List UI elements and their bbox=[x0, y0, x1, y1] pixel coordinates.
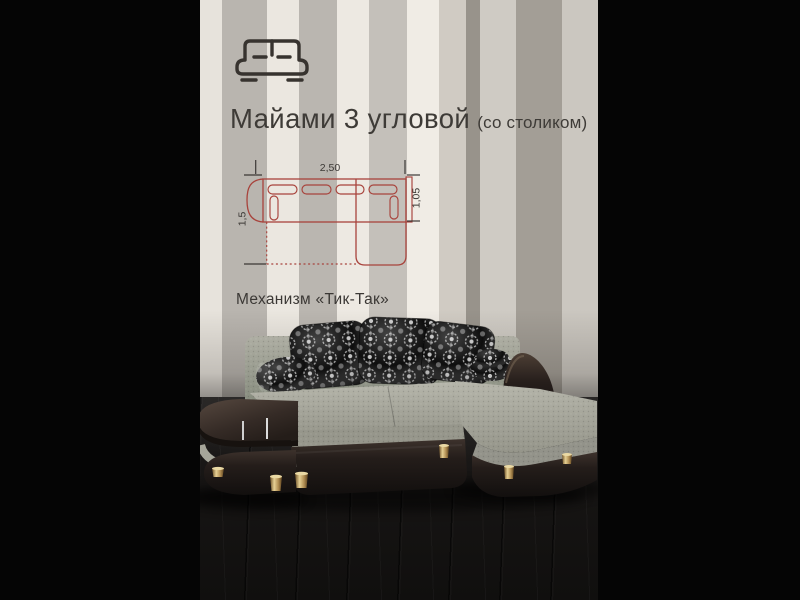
diagram-back-cushion-3 bbox=[336, 185, 364, 194]
photo-content: Майами 3 угловой (со столиком) bbox=[200, 0, 598, 600]
chaise-section bbox=[455, 381, 597, 497]
letterbox-bar-right bbox=[598, 0, 800, 600]
diagram-left-armrest bbox=[247, 179, 263, 222]
sofa-icon bbox=[231, 36, 313, 83]
diagram-side-cushion-right bbox=[390, 196, 398, 219]
diagram-sofa-outline bbox=[247, 177, 412, 265]
table-top bbox=[200, 399, 298, 441]
letterbox-bar-left bbox=[0, 0, 200, 600]
right-depth-label: 1,05 bbox=[411, 188, 423, 209]
diagram-back-cushion-4 bbox=[369, 185, 397, 194]
product-card: Майами 3 угловой (со столиком) bbox=[0, 0, 800, 600]
diagram-dimensions: 2,50 1,05 1,5 bbox=[237, 160, 423, 264]
table-pin-right bbox=[266, 418, 268, 439]
diagram-back-cushion-2 bbox=[302, 185, 331, 194]
mechanism-label: Механизм «Тик-Так» bbox=[236, 291, 389, 309]
side-table bbox=[200, 399, 298, 495]
product-title: Майами 3 угловой bbox=[230, 103, 470, 135]
width-label: 2,50 bbox=[320, 162, 341, 174]
table-pin-left bbox=[242, 421, 244, 440]
left-depth-label: 1,5 bbox=[237, 212, 249, 227]
product-title-row: Майами 3 угловой (со столиком) bbox=[230, 103, 590, 135]
dimension-diagram: 2,50 1,05 1,5 bbox=[237, 157, 458, 271]
diagram-back-cushion-1 bbox=[268, 185, 297, 194]
diagram-chaise bbox=[356, 222, 406, 265]
product-subtitle: (со столиком) bbox=[477, 113, 587, 133]
sofa-photo bbox=[200, 313, 598, 528]
diagram-side-cushion-left bbox=[270, 196, 278, 220]
sofa-icon-body bbox=[237, 60, 307, 74]
